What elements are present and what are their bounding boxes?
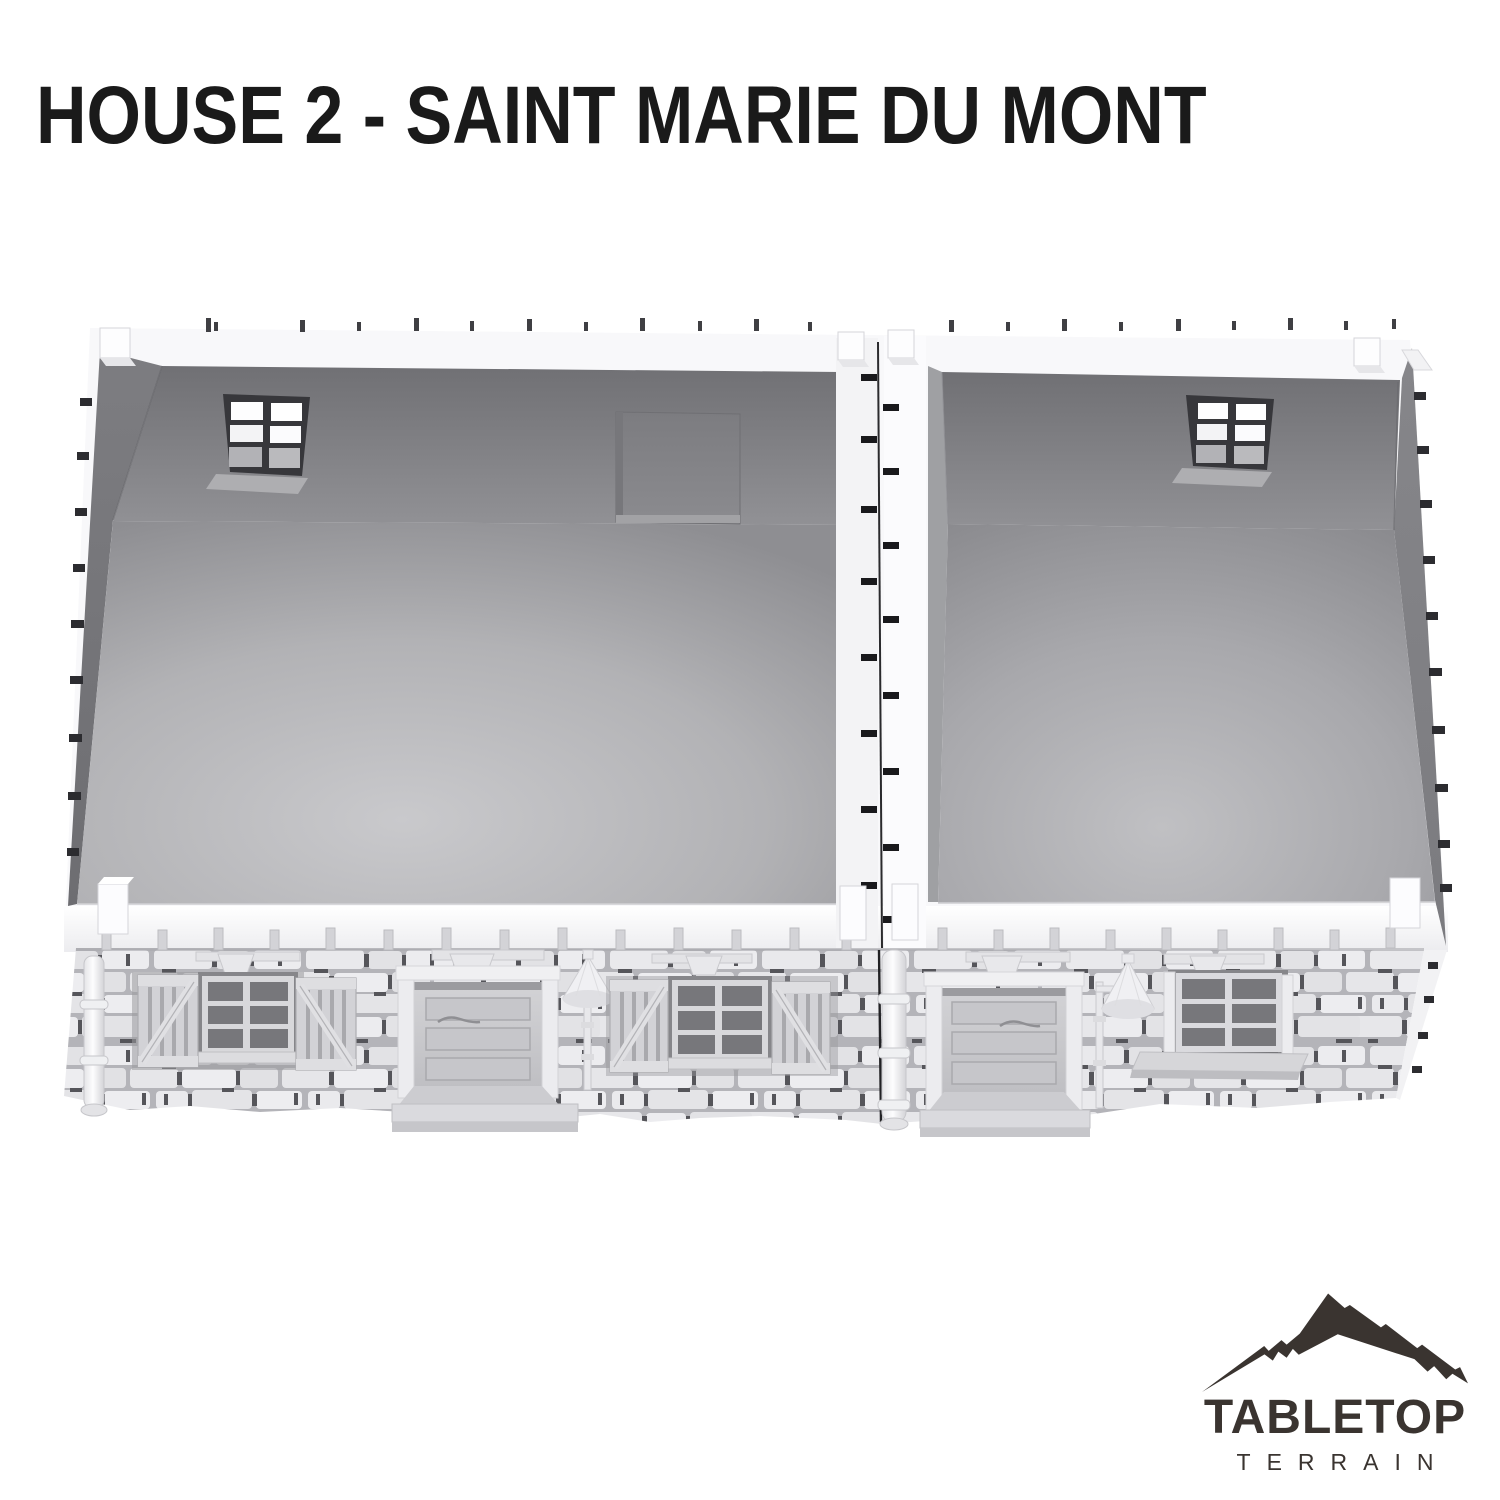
house-model: [64, 318, 1452, 1137]
shutter-right: [296, 978, 356, 1070]
door-threshold: [928, 1092, 1082, 1112]
top-edge-ticks: [206, 318, 1396, 332]
mountain-icon: [1202, 1286, 1468, 1392]
left-room: [68, 350, 852, 906]
drainpipe-center: [878, 950, 910, 1130]
shuttered-window-left: [132, 972, 356, 1070]
door-left: [392, 966, 578, 1132]
window-sill: [192, 1052, 304, 1063]
window-shelf: [1132, 1052, 1308, 1072]
shutter-left: [610, 980, 668, 1072]
front-facade: [64, 928, 1447, 1137]
window-sill: [662, 1058, 778, 1069]
shuttered-window-mid: [606, 976, 838, 1076]
brand-logo: TABLETOP TERRAIN: [1202, 1286, 1468, 1476]
brand-name: TABLETOP: [1202, 1394, 1468, 1442]
door-right: [920, 972, 1090, 1137]
brand-subtitle: TERRAIN: [1202, 1449, 1468, 1476]
door-step: [392, 1104, 578, 1122]
right-room-back-wall: [942, 372, 1400, 530]
shutter-right: [772, 982, 830, 1074]
left-room-floor: [77, 521, 852, 904]
right-room: [928, 348, 1446, 946]
product-render: [0, 0, 1500, 1500]
fireplace-alcove: [616, 412, 740, 524]
shutter-left: [138, 975, 198, 1067]
door-step: [920, 1110, 1090, 1128]
right-room-floor: [938, 524, 1435, 903]
door-threshold: [398, 1086, 560, 1106]
drainpipe-left-corner: [80, 956, 108, 1116]
product-page: HOUSE 2 - SAINT MARIE DU MONT: [0, 0, 1500, 1500]
